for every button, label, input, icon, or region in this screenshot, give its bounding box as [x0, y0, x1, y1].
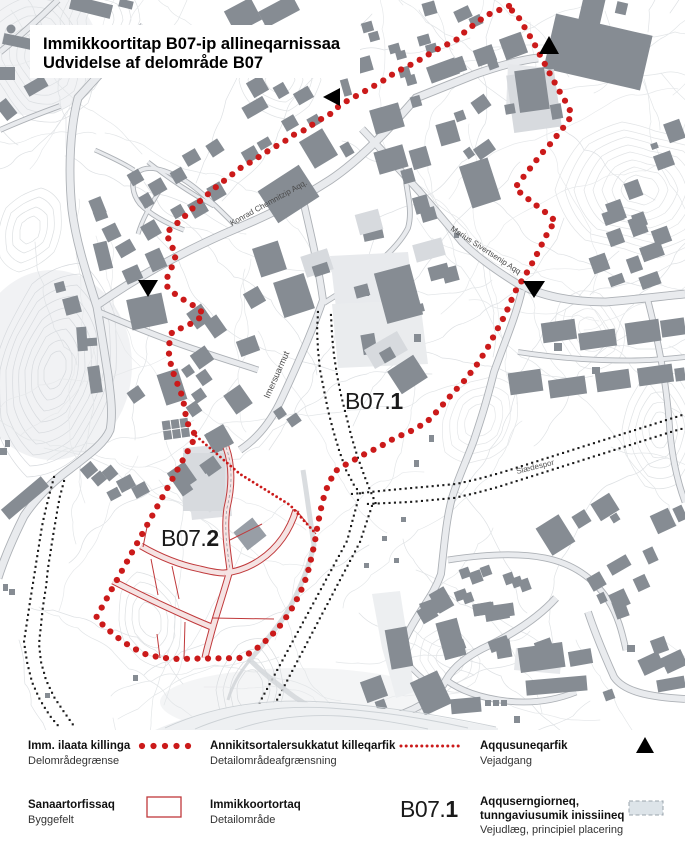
svg-text:tunngaviusumik inissiineq: tunngaviusumik inissiineq — [480, 810, 624, 822]
svg-text:Sanaartorfissaq: Sanaartorfissaq — [28, 799, 115, 811]
svg-text:Aqquserngiorneq,: Aqquserngiorneq, — [480, 796, 579, 808]
svg-text:Immikkoortortaq: Immikkoortortaq — [210, 799, 301, 811]
svg-text:B07.1: B07.1 — [400, 796, 458, 822]
svg-text:Vejudlæg, principiel placering: Vejudlæg, principiel placering — [480, 824, 623, 836]
svg-text:B07.1: B07.1 — [345, 388, 403, 414]
svg-text:Immikkoortitap B07-ip allineqa: Immikkoortitap B07-ip allineqarnissaa — [43, 35, 341, 53]
svg-text:Imm. ilaata killinga: Imm. ilaata killinga — [28, 740, 131, 752]
svg-text:Aqqusuneqarfik: Aqqusuneqarfik — [480, 740, 568, 752]
svg-text:Delområdegrænse: Delområdegrænse — [28, 755, 119, 767]
svg-text:Annikitsortalersukkatut killeq: Annikitsortalersukkatut killeqarfik — [210, 740, 396, 752]
svg-text:Detailområdeafgrænsning: Detailområdeafgrænsning — [210, 755, 337, 767]
svg-text:Byggefelt: Byggefelt — [28, 814, 74, 826]
svg-text:Udvidelse af delområde B07: Udvidelse af delområde B07 — [43, 54, 263, 72]
svg-text:Detailområde: Detailområde — [210, 814, 275, 826]
svg-text:Vejadgang: Vejadgang — [480, 755, 532, 767]
svg-text:B07.2: B07.2 — [161, 525, 219, 551]
